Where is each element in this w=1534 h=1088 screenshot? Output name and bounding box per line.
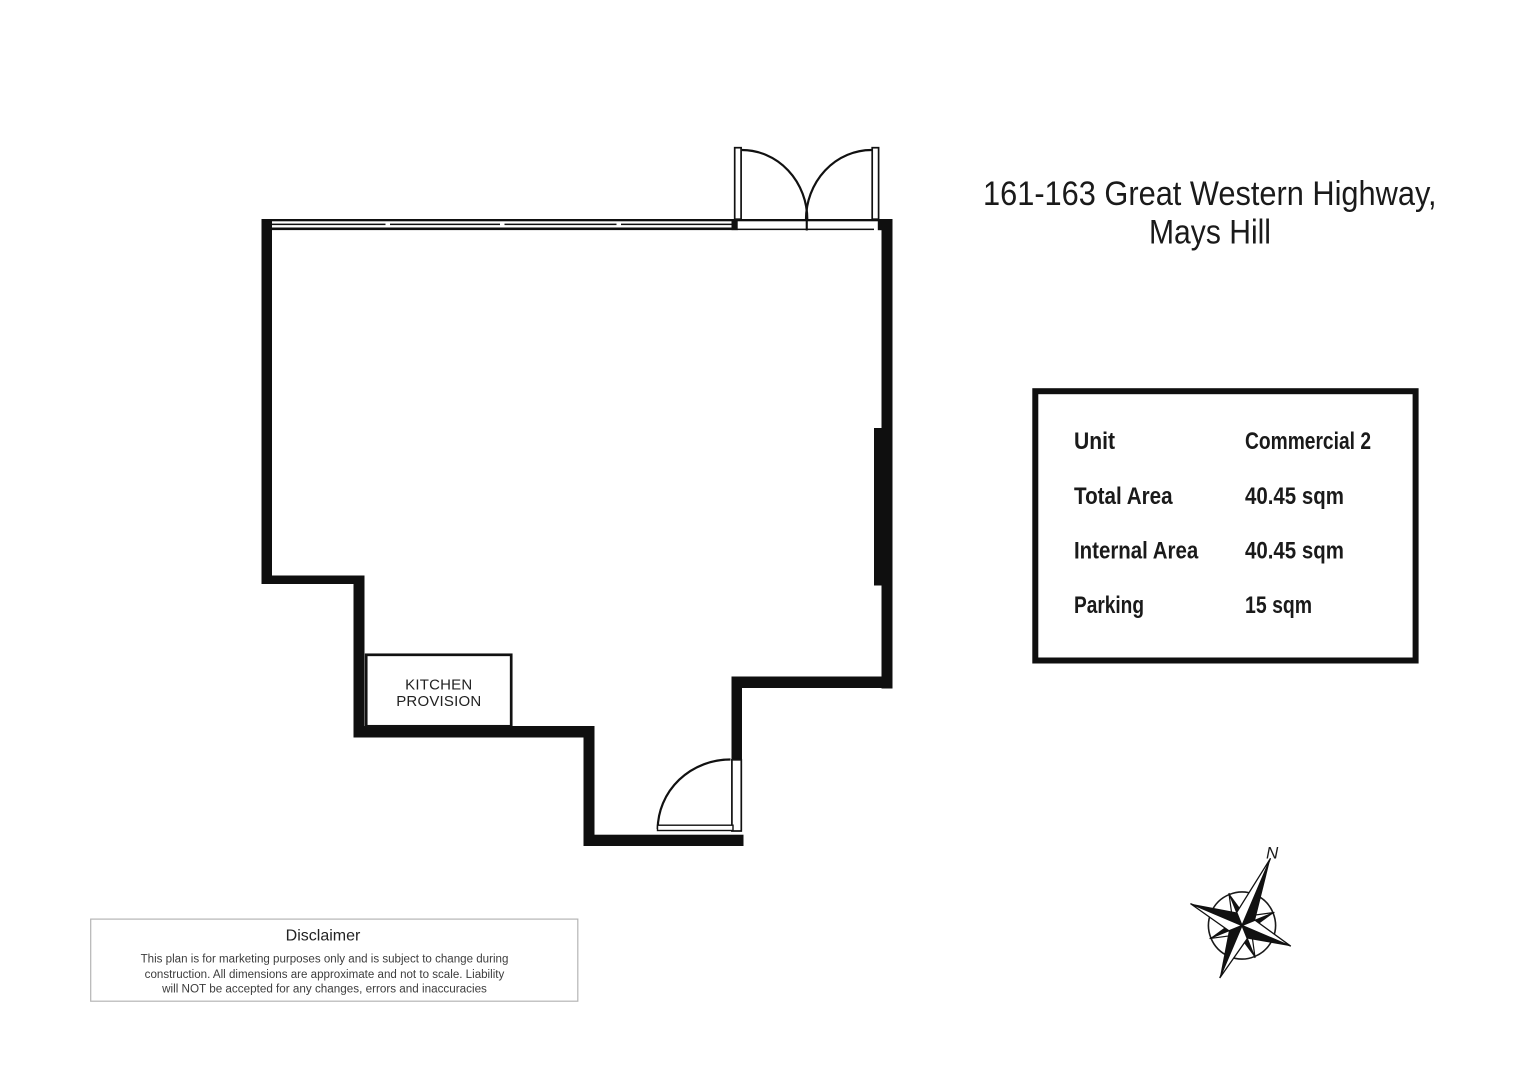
svg-text:PROVISION: PROVISION [396, 693, 481, 710]
svg-text:Unit: Unit [1074, 428, 1115, 455]
svg-text:will NOT be accepted for any: will NOT be accepted for any changes, er… [161, 983, 487, 995]
svg-text:KITCHEN: KITCHEN [405, 676, 472, 693]
svg-text:161-163 Great Western Highway,: 161-163 Great Western Highway, [983, 175, 1437, 213]
svg-text:Disclaimer: Disclaimer [286, 928, 361, 945]
svg-text:N: N [1266, 844, 1279, 863]
svg-text:Internal Area: Internal Area [1074, 537, 1199, 564]
svg-text:Commercial 2: Commercial 2 [1245, 428, 1371, 455]
svg-text:Mays Hill: Mays Hill [1149, 214, 1271, 252]
svg-text:15 sqm: 15 sqm [1245, 592, 1312, 619]
svg-text:40.45 sqm: 40.45 sqm [1245, 537, 1344, 564]
svg-text:This plan is for marketing pur: This plan is for marketing purposes only… [141, 954, 509, 966]
svg-text:construction. All dimensions a: construction. All dimensions are approxi… [145, 969, 505, 981]
svg-text:Total Area: Total Area [1074, 483, 1173, 510]
svg-text:40.45 sqm: 40.45 sqm [1245, 483, 1344, 510]
svg-text:Parking: Parking [1074, 592, 1144, 619]
